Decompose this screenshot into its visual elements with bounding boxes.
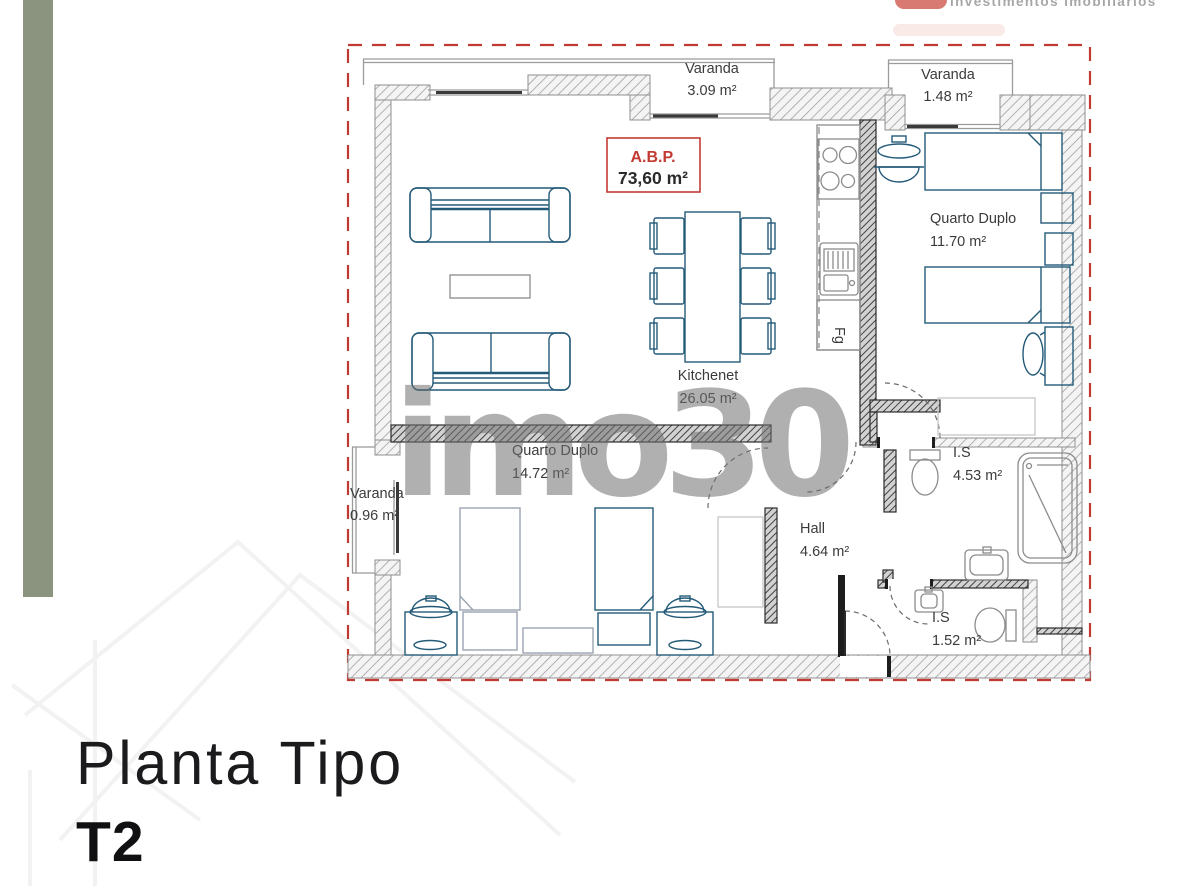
room-name-label: I.S	[932, 610, 950, 626]
kitchen-sink-icon	[820, 243, 858, 295]
room-name-label: Hall	[800, 521, 825, 537]
abp-label: A.B.P.	[630, 149, 675, 166]
brand-tagline: investimentos imobiliários	[950, 0, 1157, 9]
room-area-label: 1.52 m²	[932, 633, 981, 649]
side-lamp-icon	[874, 136, 924, 182]
left-accent-bar	[23, 0, 53, 597]
bed-single	[595, 508, 653, 645]
room-name-label: Varanda	[350, 486, 405, 502]
bedroom-right-furniture	[874, 133, 1073, 435]
room-name-label: Quarto Duplo	[930, 211, 1016, 227]
kitchen-counter: Fg	[817, 125, 860, 350]
door-arcs	[708, 383, 940, 656]
page-title: Planta Tipo	[76, 733, 404, 794]
abp-box: A.B.P. 73,60 m²	[607, 138, 700, 192]
sink-icon	[915, 587, 943, 612]
room-name-label: Varanda	[921, 67, 976, 83]
nightstand-lamp-icon	[657, 596, 713, 655]
apartment-type-label: T2	[76, 814, 145, 871]
coffee-table	[450, 275, 530, 298]
room-area-label: 3.09 m²	[687, 83, 736, 99]
brand-logo-mark-icon	[895, 0, 947, 9]
room-area-label: 11.70 m²	[930, 234, 986, 250]
sink-icon	[965, 547, 1008, 580]
room-area-label: 1.48 m²	[923, 89, 972, 105]
bedroom-bottom-furniture	[405, 508, 763, 655]
bed-bench	[523, 628, 593, 653]
desk-chair-icon	[1023, 332, 1045, 376]
room-area-label: 4.53 m²	[953, 468, 1002, 484]
room-area-label: 26.05 m²	[679, 391, 736, 407]
floorplan: Fg	[340, 35, 1100, 695]
room-area-label: 4.64 m²	[800, 544, 849, 560]
room-name-label: I.S	[953, 445, 971, 461]
dresser	[938, 398, 1035, 435]
abp-area: 73,60 m²	[618, 168, 688, 188]
balcony-rails	[352, 59, 1013, 573]
bed-single	[925, 133, 1062, 190]
bed-single	[925, 267, 1070, 323]
floorplan-drawing: Fg	[340, 35, 1100, 695]
room-area-label: 0.96 m²	[350, 508, 399, 524]
nightstand-lamp-icon	[405, 596, 457, 655]
sofa-bottom	[412, 333, 570, 390]
room-name-label: Varanda	[685, 61, 740, 77]
wardrobe	[718, 517, 763, 607]
room-name-label: Kitchenet	[678, 368, 738, 384]
dining-set	[650, 212, 775, 362]
bed-single	[460, 508, 520, 650]
fridge-label: Fg	[831, 327, 847, 344]
sofa-top	[410, 188, 570, 242]
toilet-icon	[910, 450, 940, 495]
room-area-label: 14.72 m²	[512, 466, 569, 482]
room-name-label: Quarto Duplo	[512, 443, 598, 459]
